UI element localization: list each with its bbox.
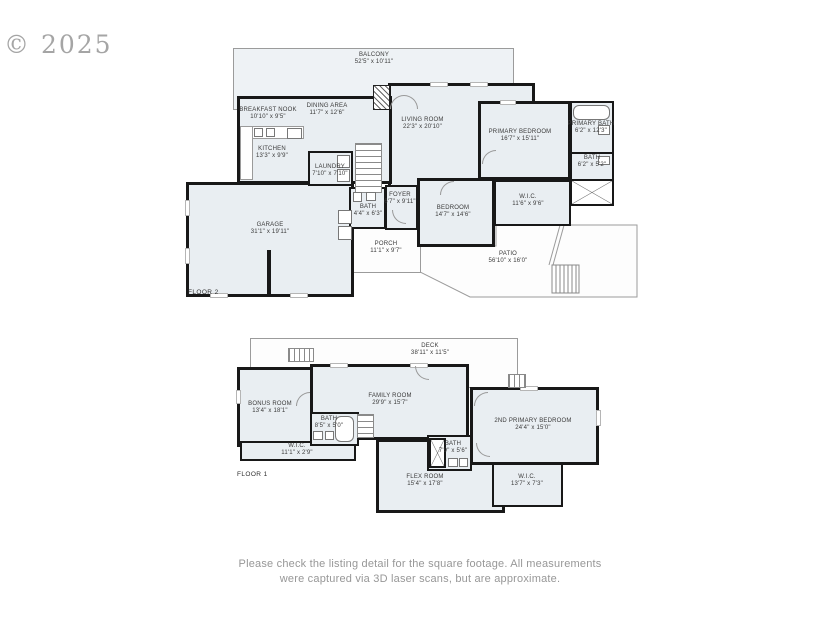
- room-name: KITCHEN: [237, 146, 307, 153]
- room-label-second-primary-bedroom: 2ND PRIMARY BEDROOM 24'4" x 15'0": [478, 418, 588, 432]
- room-dims: 11'6" x 9'6": [498, 201, 558, 208]
- room-label-wic-floor2: W.I.C. 11'6" x 9'6": [498, 194, 558, 208]
- room-dims: 16'7" x 15'11": [480, 136, 560, 143]
- floor2-label: FLOOR 2: [188, 289, 219, 296]
- room-name: FOYER: [376, 192, 424, 199]
- room-name: GARAGE: [235, 222, 305, 229]
- room-name: BONUS ROOM: [233, 401, 307, 408]
- room-dims: 56'10" x 16'0": [478, 258, 538, 265]
- deck-stairs-left: [288, 348, 314, 362]
- room-dims: 8'5" x 5'0": [306, 423, 352, 430]
- floor1-label: FLOOR 1: [237, 471, 268, 478]
- disclaimer-line1: Please check the listing detail for the …: [0, 557, 840, 572]
- room-dims: 13'7" x 7'3": [492, 481, 562, 488]
- room-name: PATIO: [478, 251, 538, 258]
- room-label-bonus-room: BONUS ROOM 13'4" x 18'1": [233, 401, 307, 415]
- room-label-balcony: BALCONY 52'5" x 10'11": [334, 52, 414, 66]
- room-dims: 6'2" x 12'3": [562, 128, 620, 135]
- room-name: DECK: [395, 343, 465, 350]
- room-label-primary-bedroom: PRIMARY BEDROOM 16'7" x 15'11": [480, 129, 560, 143]
- room-name: 2ND PRIMARY BEDROOM: [478, 418, 588, 425]
- window: [185, 200, 190, 216]
- bath-small-toilet-icon: [353, 192, 362, 202]
- room-label-living-room: LIVING ROOM 22'3" x 20'10": [385, 117, 460, 131]
- room-name: PRIMARY BEDROOM: [480, 129, 560, 136]
- staircase-floor2: [355, 143, 382, 193]
- floor-plan-page: BALCONY 52'5" x 10'11" BREAKFAST NOOK 10…: [0, 0, 840, 630]
- room-label-flex-room: FLEX ROOM 15'4" x 17'8": [390, 474, 460, 488]
- room-name: DINING AREA: [292, 103, 362, 110]
- bath-small-sink-icon: [366, 192, 376, 201]
- window: [430, 82, 448, 87]
- bath-b-sink-icon: [459, 458, 468, 467]
- room-name: W.I.C.: [492, 474, 562, 481]
- room-dims: 13'4" x 18'1": [233, 408, 307, 415]
- shower-right: [570, 179, 614, 206]
- room-dims: 13'3" x 9'9": [237, 153, 307, 160]
- furnace-icon: [338, 226, 352, 240]
- room-label-bedroom: BEDROOM 14'7" x 14'6": [418, 205, 488, 219]
- room-label-primary-bath: PRIMARY BATH 6'2" x 12'3": [562, 121, 620, 135]
- bath-a-sink-icon: [325, 431, 334, 440]
- room-name: BATH: [306, 416, 352, 423]
- room-dims: 7'9" x 5'6": [433, 448, 473, 455]
- room-label-bath-right: BATH 6'2" x 5'2": [567, 155, 617, 169]
- cooktop-icon: [266, 128, 275, 137]
- room-label-bath-b: BATH 7'9" x 5'6": [433, 441, 473, 455]
- room-name: W.I.C.: [498, 194, 558, 201]
- room-dims: 52'5" x 10'11": [334, 59, 414, 66]
- room-label-wic-a: W.I.C. 11'1" x 2'9": [262, 443, 332, 457]
- room-label-patio: PATIO 56'10" x 16'0": [478, 251, 538, 265]
- window: [330, 363, 348, 368]
- disclaimer-line2: were captured via 3D laser scans, but ar…: [0, 572, 840, 587]
- room-dims: 11'1" x 9'7": [356, 248, 416, 255]
- room-name: BATH: [348, 204, 388, 211]
- room-label-garage: GARAGE 31'1" x 19'11": [235, 222, 305, 236]
- room-dims: 7'10" x 7'10": [302, 171, 358, 178]
- room-dims: 14'7" x 14'6": [418, 212, 488, 219]
- fridge-icon: [287, 128, 302, 139]
- room-name: LAUNDRY: [302, 164, 358, 171]
- room-name: PRIMARY BATH: [562, 121, 620, 128]
- room-label-porch: PORCH 11'1" x 9'7": [356, 241, 416, 255]
- room-label-kitchen: KITCHEN 13'3" x 9'9": [237, 146, 307, 160]
- bathtub-primary-icon: [573, 105, 610, 120]
- room-name: LIVING ROOM: [385, 117, 460, 124]
- room-dims: 11'7" x 12'6": [292, 110, 362, 117]
- room-dims: 22'3" x 20'10": [385, 124, 460, 131]
- room-name: BATH: [433, 441, 473, 448]
- bath-b-toilet-icon: [448, 458, 458, 467]
- copyright-watermark: © 2025: [4, 30, 113, 59]
- room-name: BATH: [567, 155, 617, 162]
- room-dims: 6'2" x 5'2": [567, 162, 617, 169]
- room-dims: 15'4" x 17'8": [390, 481, 460, 488]
- fireplace-icon: [373, 85, 390, 110]
- room-dims: 29'9" x 15'7": [355, 400, 425, 407]
- room-dims: 4'4" x 6'3": [348, 211, 388, 218]
- room-name: W.I.C.: [262, 443, 332, 450]
- room-name: BEDROOM: [418, 205, 488, 212]
- garage-divider-wall: [267, 250, 271, 295]
- room-label-deck: DECK 38'11" x 11'5": [395, 343, 465, 357]
- window: [185, 248, 190, 264]
- window: [500, 100, 516, 105]
- kitchen-sink-icon: [254, 128, 263, 137]
- room-label-dining-area: DINING AREA 11'7" x 12'6": [292, 103, 362, 117]
- window: [470, 82, 488, 87]
- room-label-laundry: LAUNDRY 7'10" x 7'10": [302, 164, 358, 178]
- window: [596, 410, 601, 426]
- room-name: FLEX ROOM: [390, 474, 460, 481]
- bath-a-toilet-icon: [313, 431, 323, 440]
- room-label-bath-small: BATH 4'4" x 6'3": [348, 204, 388, 218]
- room-dims: 11'1" x 2'9": [262, 450, 332, 457]
- deck-stairs-right: [508, 374, 526, 388]
- room-dims: 38'11" x 11'5": [395, 350, 465, 357]
- room-name: PORCH: [356, 241, 416, 248]
- staircase-floor1: [357, 414, 374, 438]
- room-name: FAMILY ROOM: [355, 393, 425, 400]
- room-label-bath-a: BATH 8'5" x 5'0": [306, 416, 352, 430]
- room-name: BALCONY: [334, 52, 414, 59]
- room-label-family-room: FAMILY ROOM 29'9" x 15'7": [355, 393, 425, 407]
- room-dims: 24'4" x 15'0": [478, 425, 588, 432]
- room-dims: 31'1" x 19'11": [235, 229, 305, 236]
- window: [290, 293, 308, 298]
- room-label-wic-b: W.I.C. 13'7" x 7'3": [492, 474, 562, 488]
- disclaimer-text: Please check the listing detail for the …: [0, 557, 840, 587]
